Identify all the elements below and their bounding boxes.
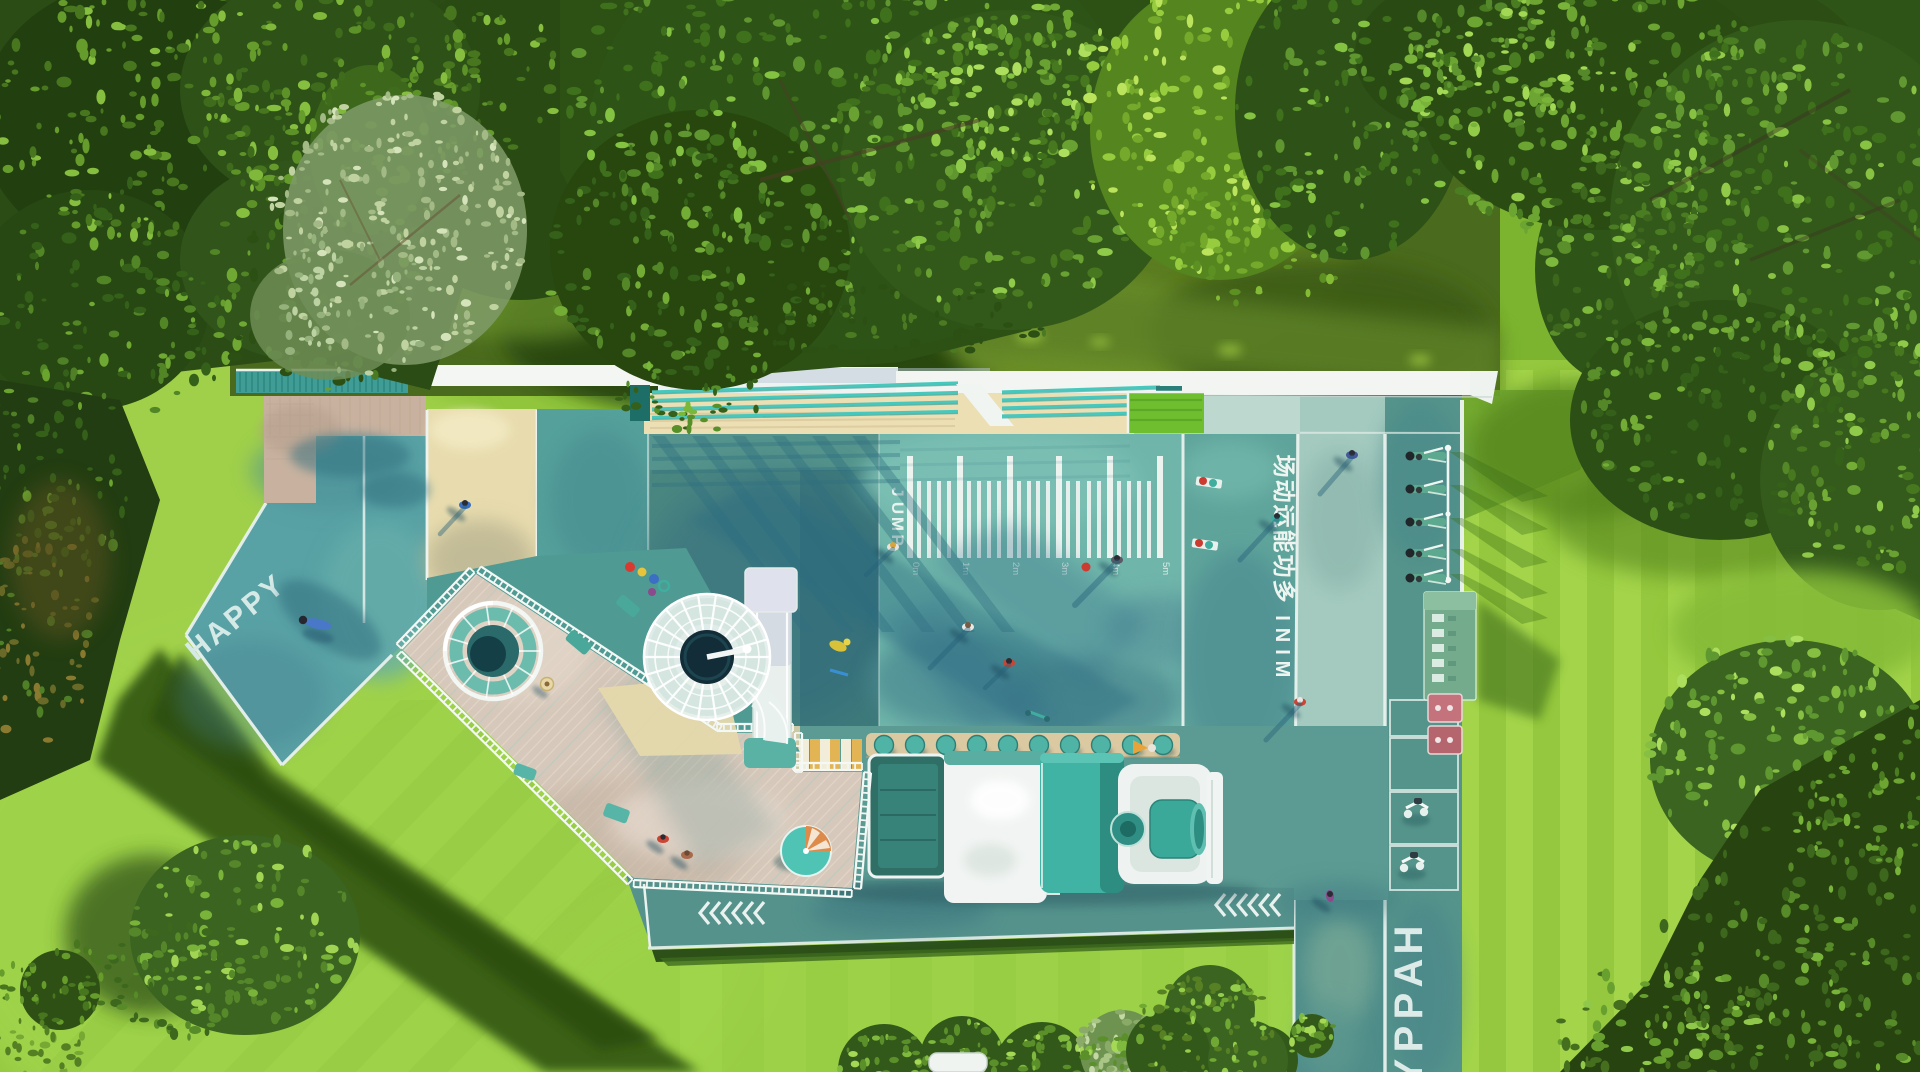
svg-text:I: I [1271, 649, 1293, 655]
svg-text:N: N [1271, 628, 1293, 642]
svg-text:Y: Y [1387, 1058, 1431, 1072]
svg-text:M: M [1271, 661, 1293, 678]
svg-text:多: 多 [1271, 580, 1297, 603]
svg-text:H: H [1387, 926, 1431, 955]
svg-text:场: 场 [1271, 455, 1297, 478]
svg-text:动: 动 [1271, 480, 1297, 503]
svg-text:5m: 5m [1160, 562, 1171, 575]
svg-text:P: P [1387, 1026, 1431, 1053]
svg-text:P: P [1387, 993, 1431, 1020]
svg-text:A: A [1387, 959, 1431, 988]
svg-text:功: 功 [1271, 555, 1297, 578]
svg-text:I: I [1271, 615, 1293, 621]
